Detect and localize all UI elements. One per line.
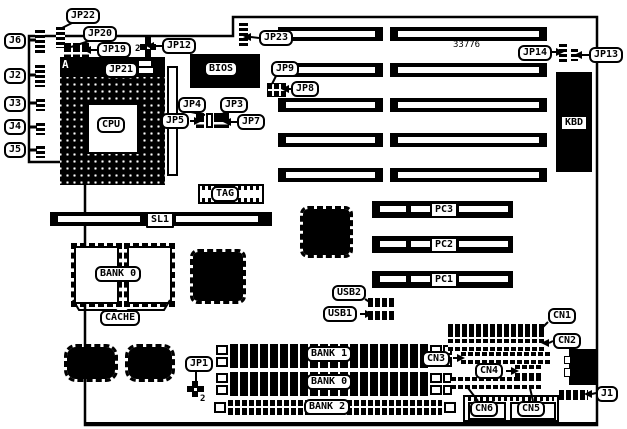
callout-j4: J4 [4, 119, 26, 135]
motherboard-diagram: JP22JP20JP19JP12JP21J6J2J3J4J5JP23JP9JP8… [0, 0, 627, 429]
edge-connector [569, 349, 597, 385]
isa-slot-1-right-inner [398, 31, 539, 37]
cn2-header [448, 339, 545, 351]
sl1-slot-inner-1 [58, 216, 140, 222]
edge-notch-b [564, 368, 571, 377]
simm-socket-3-clip-left [216, 373, 228, 383]
callout-j6: J6 [4, 33, 26, 49]
callout-pc2: PC2 [430, 237, 458, 253]
callout-jp3: JP3 [220, 97, 248, 113]
callout-sl1: SL1 [146, 212, 174, 228]
callout-j3: J3 [4, 96, 26, 112]
simm-socket-4-clip-left [216, 385, 228, 395]
j1-header [559, 390, 588, 400]
callout-jp8: JP8 [291, 81, 319, 97]
top-header-slot-a [139, 61, 151, 66]
cn4-header [515, 365, 543, 377]
isa-slot-2-right-inner [398, 67, 539, 73]
jp20-jumper-2 [73, 43, 80, 58]
j3-pins [36, 97, 45, 111]
j6-pins [35, 28, 45, 53]
jp13-pins [571, 47, 578, 61]
cn1-header [448, 324, 545, 337]
jp14-pins [559, 42, 567, 63]
jp19-jumper [82, 43, 89, 58]
callout-jp19: JP19 [97, 42, 131, 58]
callout-tag: TAG [211, 186, 239, 202]
callout-pc1: PC1 [430, 272, 458, 288]
callout-bank2: BANK 2 [304, 399, 350, 415]
pci-slot-pc2-seg1 [380, 241, 406, 247]
callout-cn6: CN6 [470, 401, 498, 417]
callout-jp1: JP1 [185, 356, 213, 372]
jp8-jp9-block [267, 83, 286, 97]
callout-cn5: CN5 [517, 401, 545, 417]
callout-jp7: JP7 [237, 114, 265, 130]
jp5-jumper [196, 113, 204, 128]
isa-slot-3-left-inner [286, 102, 375, 108]
simm-socket-1-clip-left [216, 345, 228, 355]
callout-jp4: JP4 [178, 97, 206, 113]
isa-slot-4-left-inner [286, 137, 375, 143]
callout-pc3: PC3 [430, 202, 458, 218]
callout-jp23: JP23 [259, 30, 293, 46]
board-number: 33776 [453, 41, 480, 50]
callout-cn4: CN4 [475, 363, 503, 379]
chip-blob-a [64, 344, 118, 382]
cn3-header [461, 352, 552, 364]
callout-bank0-cache: BANK 0 [95, 266, 141, 282]
callout-usb1: USB1 [323, 306, 357, 322]
callout-jp9: JP9 [271, 61, 299, 77]
jp23-line [251, 37, 259, 38]
j5-pins [36, 144, 45, 158]
callout-j2: J2 [4, 68, 26, 84]
chip-qfp-b [300, 206, 353, 258]
simm-socket-2-clip-left [216, 357, 228, 367]
jp1-pin2: 2 [200, 395, 205, 404]
callout-jp20: JP20 [83, 26, 117, 42]
isa-slot-4-right-inner [398, 137, 539, 143]
callout-jp14: JP14 [518, 45, 552, 61]
simm-bank2-clip-left [214, 402, 226, 413]
callout-cn3: CN3 [422, 351, 450, 367]
edge-notch-a [564, 356, 571, 364]
callout-usb2: USB2 [332, 285, 366, 301]
callout-cn2: CN2 [553, 333, 581, 349]
pci-slot-pc1-seg3 [459, 276, 508, 282]
isa-slot-5-right-inner [398, 172, 539, 178]
pin1-marker-a: A [62, 59, 69, 70]
jp1-jumper-notch [194, 388, 197, 391]
pci-slot-pc2-seg3 [459, 241, 508, 247]
simm-socket-3-clip-right [430, 373, 442, 383]
callout-cpu: CPU [97, 117, 125, 133]
callout-cn1: CN1 [548, 308, 576, 324]
jp23-pins [239, 21, 248, 48]
usb2-header [368, 298, 396, 307]
jp12-jumper-notch [147, 46, 150, 49]
jp4-jumper [206, 113, 213, 128]
j4-pins [36, 121, 45, 135]
callout-jp13: JP13 [589, 47, 623, 63]
callout-j5: J5 [4, 142, 26, 158]
sl1-slot-inner-2 [176, 216, 258, 222]
simm-socket-4-clip-right [430, 385, 442, 395]
top-header-slot-b [139, 68, 153, 73]
isa-slot-3-right-inner [398, 102, 539, 108]
isa-slot-2-left-inner [286, 67, 375, 73]
usb1-header [368, 311, 396, 320]
callout-bank1: BANK 1 [306, 346, 352, 362]
cn5-header [515, 377, 543, 389]
simm-bank2-clip-right [444, 402, 456, 413]
pci-slot-pc1-seg1 [380, 276, 406, 282]
callout-kbd: KBD [560, 115, 588, 131]
callout-jp5: JP5 [161, 113, 189, 129]
callout-cache: CACHE [100, 310, 140, 326]
isa-slot-5-left-inner [286, 172, 375, 178]
callout-bank0-simm: BANK 0 [306, 374, 352, 390]
callout-jp22: JP22 [66, 8, 100, 24]
jp7-jumper [221, 113, 229, 128]
callout-jp12: JP12 [162, 38, 196, 54]
jp3-jumper [214, 113, 221, 128]
pci-slot-pc3-seg1 [380, 206, 406, 212]
pci-slot-pc3-seg3 [459, 206, 508, 212]
callout-jp21: JP21 [104, 62, 138, 78]
jp19-pin2: 2 [135, 45, 140, 54]
callout-bios: BIOS [204, 61, 238, 77]
j2-pins [35, 63, 45, 87]
chip-qfp-a [190, 249, 246, 304]
isa-slot-1-left-inner [286, 31, 375, 37]
jp20-jumper-1 [64, 43, 71, 58]
chip-blob-b [125, 344, 175, 382]
callout-j1: J1 [596, 386, 618, 402]
